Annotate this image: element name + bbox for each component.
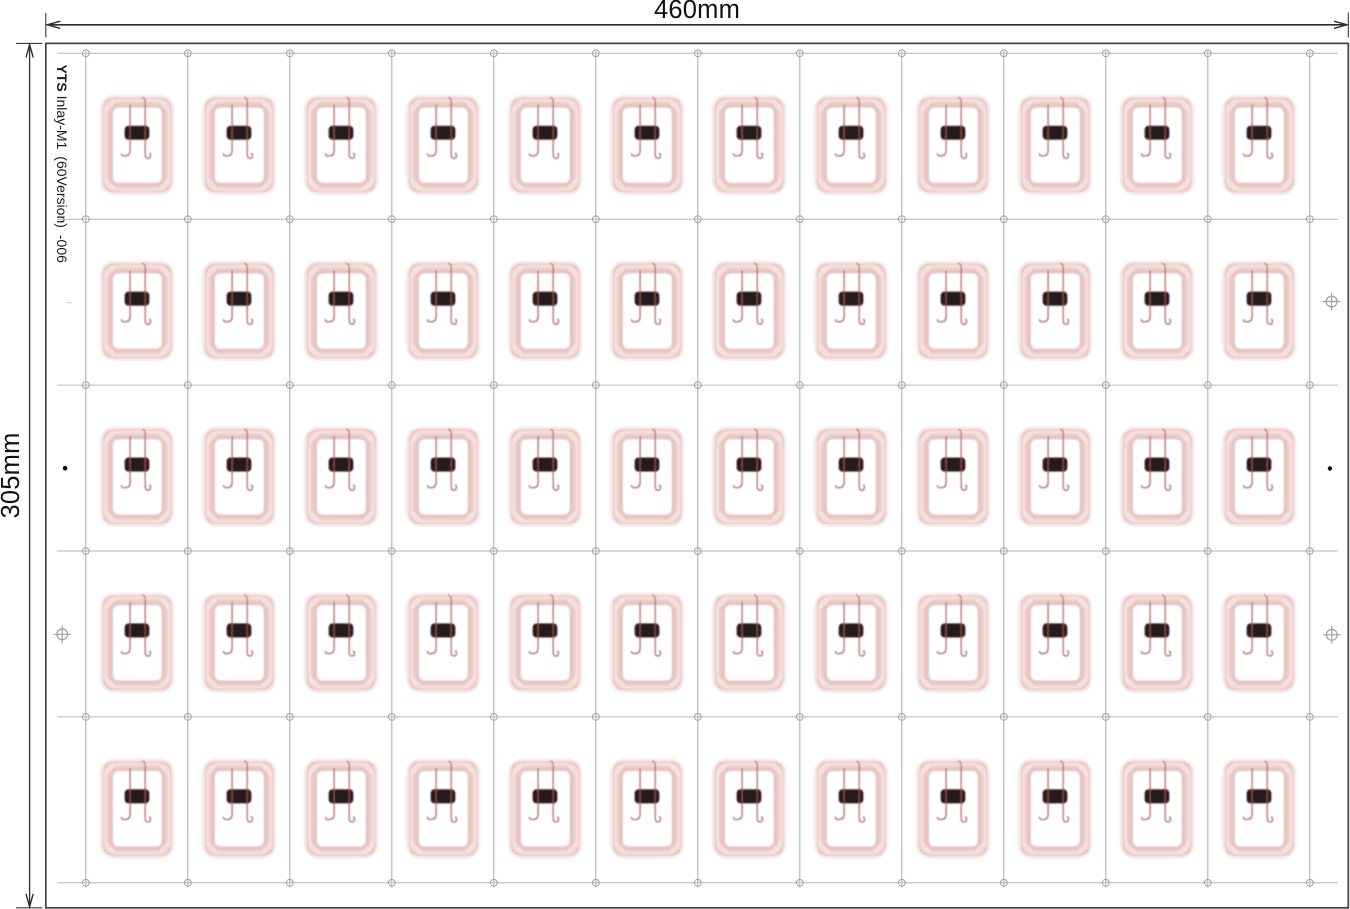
svg-text:YTS Inlay-M1 (60Version) -006: YTS Inlay-M1 (60Version) -006 xyxy=(54,65,70,264)
svg-text:460mm: 460mm xyxy=(654,0,740,24)
svg-text:305mm: 305mm xyxy=(0,432,25,518)
